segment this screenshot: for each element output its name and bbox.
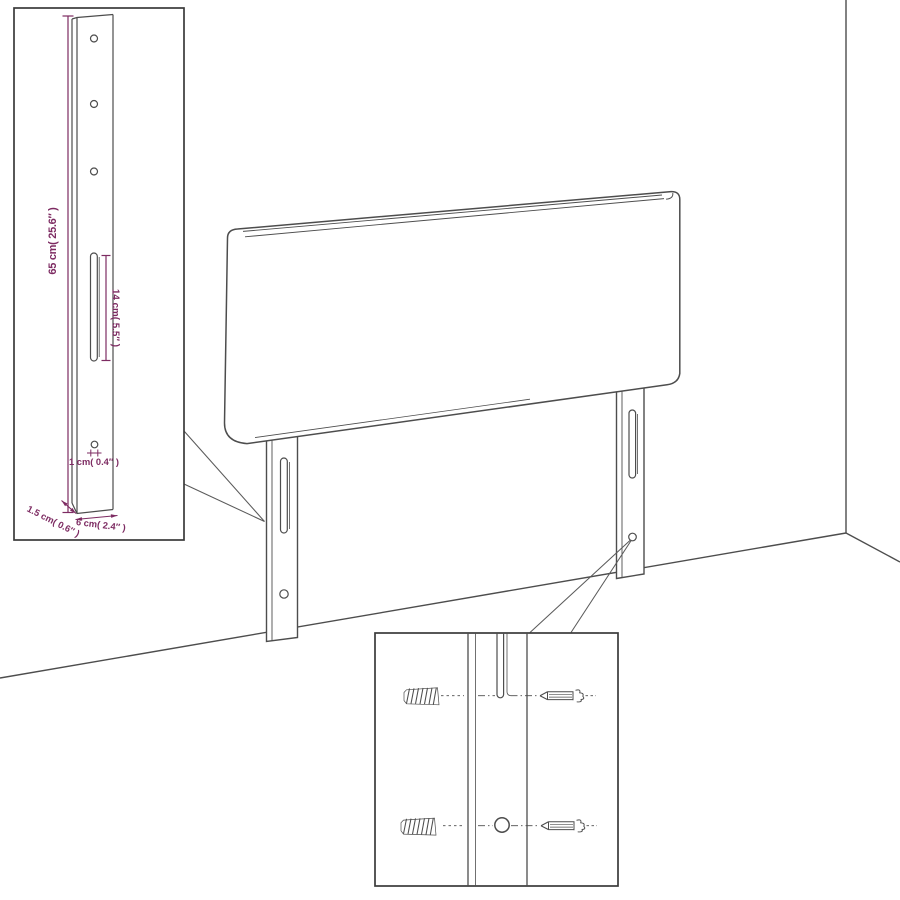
inset-leg-dimensions: 65 cm( 25.6″ ) 14 cm( 5.5″ ) 1 cm( 0.4″ … bbox=[14, 8, 184, 540]
headboard-diagram: 65 cm( 25.6″ ) 14 cm( 5.5″ ) 1 cm( 0.4″ … bbox=[0, 0, 900, 900]
leader-inset1-to-slot-upper bbox=[184, 431, 265, 522]
floor-line-right bbox=[846, 533, 900, 562]
leader-inset1-to-slot-lower bbox=[184, 484, 265, 522]
dimension-label-post-height: 65 cm( 25.6″ ) bbox=[47, 207, 59, 275]
panel-outline bbox=[225, 192, 680, 444]
callout-leader-lines bbox=[184, 431, 632, 633]
headboard-panel bbox=[225, 192, 680, 444]
dimension-label-hole-diameter: 1 cm( 0.4″ ) bbox=[69, 457, 119, 467]
dimension-label-slot-length: 14 cm( 5.5″ ) bbox=[110, 289, 121, 347]
inset-fastener-detail bbox=[375, 633, 618, 886]
diagram-canvas: 65 cm( 25.6″ ) 14 cm( 5.5″ ) 1 cm( 0.4″ … bbox=[0, 0, 900, 900]
headboard-leg-left bbox=[267, 424, 298, 642]
